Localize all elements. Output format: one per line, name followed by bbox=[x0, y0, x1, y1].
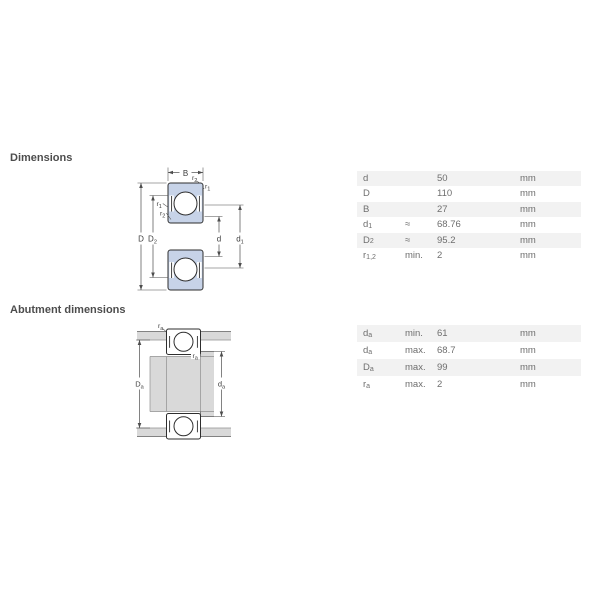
dimension-qualifier bbox=[405, 171, 437, 186]
ball bbox=[174, 192, 197, 215]
dimension-qualifier: ≈ bbox=[405, 217, 437, 232]
dimension-unit: mm bbox=[520, 359, 581, 376]
dimension-qualifier: min. bbox=[405, 325, 437, 342]
dimension-qualifier: ≈ bbox=[405, 233, 437, 248]
dimension-qualifier bbox=[405, 202, 437, 217]
bearing-bottom-section bbox=[168, 250, 203, 290]
dimension-symbol: Da bbox=[357, 359, 405, 376]
dimension-unit: mm bbox=[520, 248, 581, 263]
bearing-top-section bbox=[167, 329, 201, 355]
dim-Da: Da bbox=[134, 340, 151, 428]
dimension-unit: mm bbox=[520, 233, 581, 248]
table-row: d50mm bbox=[357, 171, 581, 186]
table-row: r1,2min.2mm bbox=[357, 248, 581, 263]
dimension-unit: mm bbox=[520, 342, 581, 359]
dimension-value: 110 bbox=[437, 186, 520, 201]
dimension-value: 50 bbox=[437, 171, 520, 186]
dim-da: da bbox=[214, 352, 228, 417]
table-row: D110mm bbox=[357, 186, 581, 201]
dimension-symbol: ra bbox=[357, 376, 405, 393]
table-row: damax.68.7mm bbox=[357, 342, 581, 359]
label-d: d bbox=[217, 235, 221, 244]
bearing-top-section bbox=[168, 183, 203, 223]
dimension-unit: mm bbox=[520, 186, 581, 201]
dimension-value: 68.76 bbox=[437, 217, 520, 232]
dimensions-heading: Dimensions bbox=[10, 152, 72, 164]
dimension-unit: mm bbox=[520, 217, 581, 232]
dimension-symbol: D2 bbox=[357, 233, 405, 248]
label-B: B bbox=[183, 169, 188, 178]
label-ra-top: ra bbox=[158, 323, 164, 332]
dimension-qualifier: max. bbox=[405, 342, 437, 359]
dimension-unit: mm bbox=[520, 202, 581, 217]
dimension-value: 2 bbox=[437, 248, 520, 263]
dimension-symbol: r1,2 bbox=[357, 248, 405, 263]
label-r1-right: r1 bbox=[205, 184, 210, 193]
label-D: D bbox=[138, 235, 144, 244]
dim-d: d bbox=[205, 217, 224, 257]
dimension-symbol: d bbox=[357, 171, 405, 186]
dimension-qualifier: max. bbox=[405, 376, 437, 393]
dimension-qualifier: max. bbox=[405, 359, 437, 376]
dimension-qualifier bbox=[405, 186, 437, 201]
ball bbox=[174, 417, 193, 436]
dimension-unit: mm bbox=[520, 325, 581, 342]
table-row: B27mm bbox=[357, 202, 581, 217]
label-r2-left: r2 bbox=[160, 211, 165, 220]
dim-B: B bbox=[168, 168, 203, 182]
abutment-diagram: ra ra Da da bbox=[130, 315, 236, 463]
table-row: Damax.99mm bbox=[357, 359, 581, 376]
ball bbox=[174, 332, 193, 351]
ball bbox=[174, 258, 197, 281]
dim-d1: d1 bbox=[205, 205, 247, 268]
table-row: damin.61mm bbox=[357, 325, 581, 342]
table-row: d1≈68.76mm bbox=[357, 217, 581, 232]
table-row: D2≈95.2mm bbox=[357, 233, 581, 248]
bearing-cross-section-diagram: B r2 r1 r1 r2 D D2 d bbox=[130, 160, 250, 300]
dimension-symbol: B bbox=[357, 202, 405, 217]
dimension-unit: mm bbox=[520, 376, 581, 393]
dimension-value: 68.7 bbox=[437, 342, 520, 359]
dimension-unit: mm bbox=[520, 171, 581, 186]
bearing-bottom-section bbox=[167, 414, 201, 440]
table-row: ramax.2mm bbox=[357, 376, 581, 393]
abutment-table: damin.61mmdamax.68.7mmDamax.99mmramax.2m… bbox=[357, 325, 581, 393]
label-r1-left: r1 bbox=[157, 201, 162, 210]
dimension-value: 2 bbox=[437, 376, 520, 393]
dimension-symbol: da bbox=[357, 325, 405, 342]
dimensions-table: d50mmD110mmB27mmd1≈68.76mmD2≈95.2mmr1,2m… bbox=[357, 171, 581, 263]
dimension-symbol: D bbox=[357, 186, 405, 201]
dimension-value: 99 bbox=[437, 359, 520, 376]
dimension-value: 61 bbox=[437, 325, 520, 342]
label-r2-top: r2 bbox=[192, 175, 197, 184]
shaft bbox=[150, 352, 214, 417]
dimension-symbol: d1 bbox=[357, 217, 405, 232]
dimension-symbol: da bbox=[357, 342, 405, 359]
dimension-value: 27 bbox=[437, 202, 520, 217]
dimension-value: 95.2 bbox=[437, 233, 520, 248]
abutment-heading: Abutment dimensions bbox=[10, 304, 126, 316]
dimension-qualifier: min. bbox=[405, 248, 437, 263]
